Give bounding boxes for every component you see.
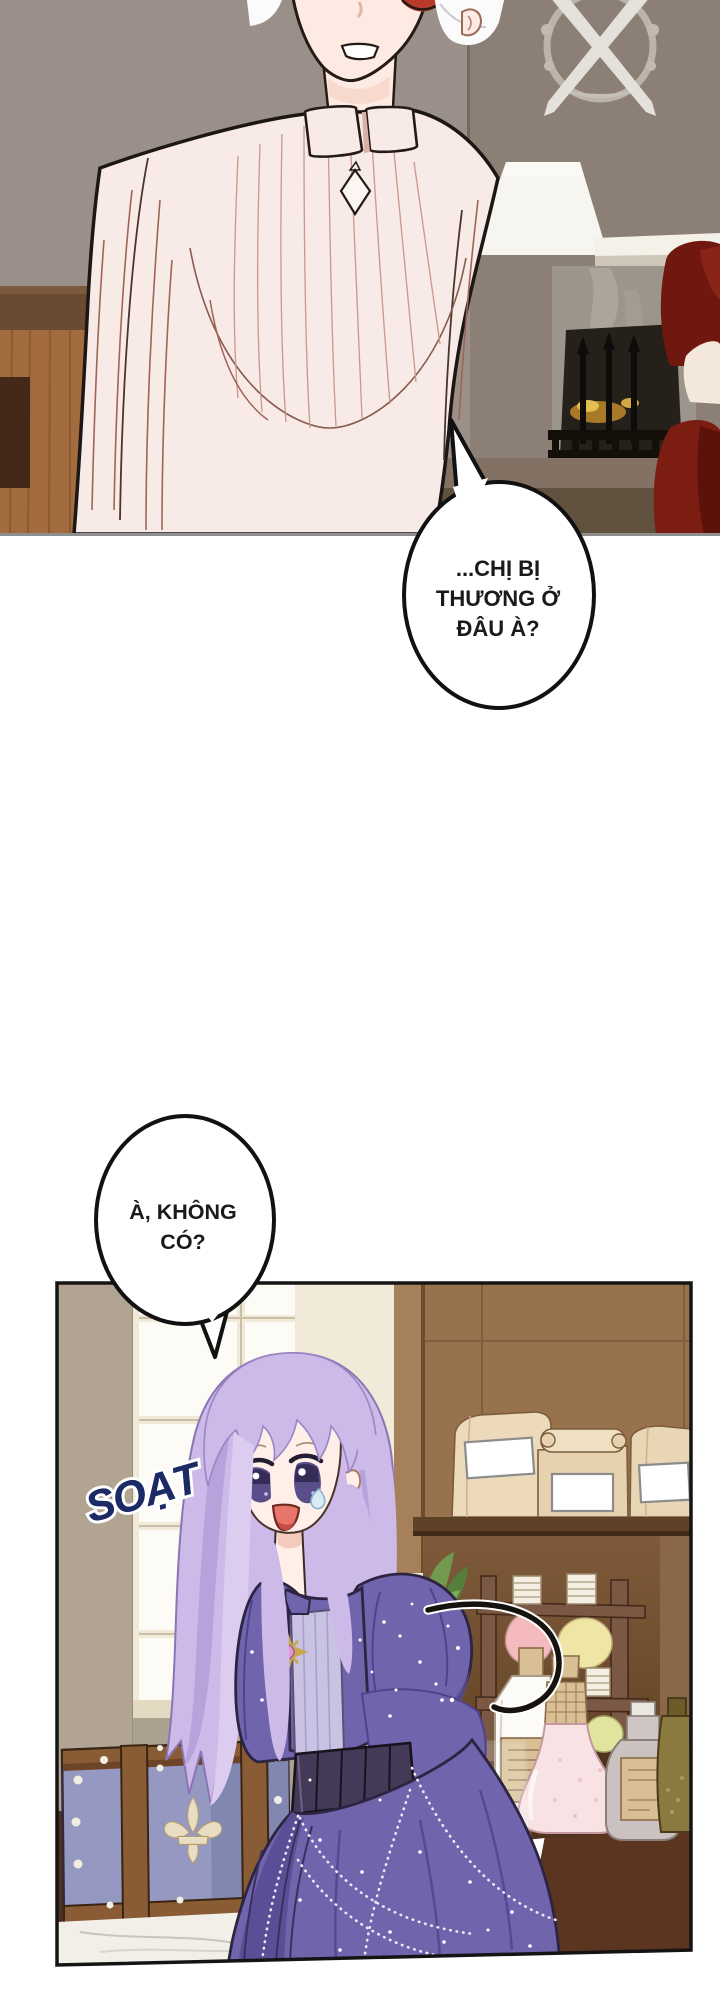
svg-text:ĐÂU À?: ĐÂU À? (456, 616, 539, 641)
svg-text:...CHỊ BỊ: ...CHỊ BỊ (456, 556, 540, 581)
svg-text:À, KHÔNG: À, KHÔNG (129, 1199, 237, 1224)
svg-text:CÓ?: CÓ? (160, 1229, 205, 1254)
svg-text:THƯƠNG Ở: THƯƠNG Ở (436, 586, 560, 611)
